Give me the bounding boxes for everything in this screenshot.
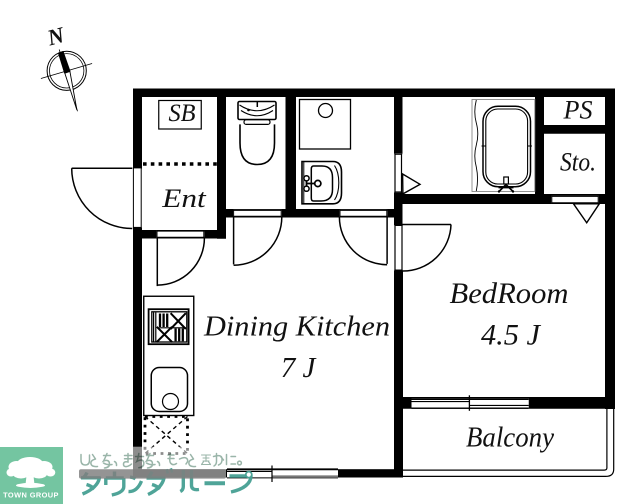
svg-text:Sto.: Sto. — [560, 148, 596, 177]
svg-text:4.5 J: 4.5 J — [481, 319, 542, 352]
svg-text:Balcony: Balcony — [466, 423, 555, 454]
svg-text:Ent: Ent — [161, 184, 207, 213]
svg-text:TOWN GROUP: TOWN GROUP — [3, 491, 59, 500]
svg-text:N: N — [44, 22, 68, 51]
svg-text:SB: SB — [169, 100, 196, 127]
svg-text:7 J: 7 J — [281, 352, 317, 384]
svg-text:Dining Kitchen: Dining Kitchen — [203, 311, 390, 343]
svg-text:BedRoom: BedRoom — [450, 277, 569, 310]
svg-text:PS: PS — [562, 96, 592, 125]
